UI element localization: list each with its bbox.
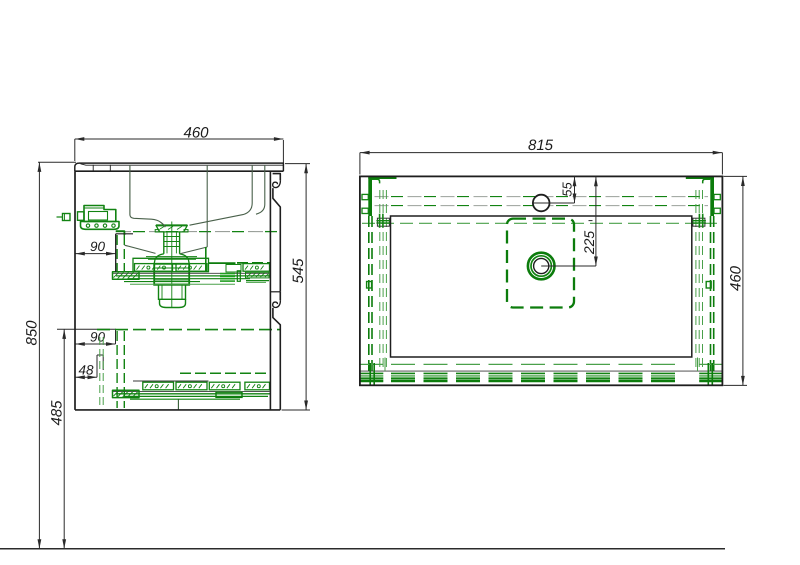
svg-text:545: 545	[290, 258, 307, 284]
svg-text:460: 460	[183, 124, 209, 141]
svg-text:48: 48	[78, 363, 94, 378]
svg-text:815: 815	[528, 137, 554, 154]
svg-text:485: 485	[49, 400, 66, 426]
svg-text:850: 850	[24, 320, 41, 346]
svg-text:225: 225	[581, 231, 597, 256]
svg-text:55: 55	[560, 182, 575, 197]
svg-text:90: 90	[90, 239, 106, 254]
svg-text:460: 460	[728, 265, 745, 291]
